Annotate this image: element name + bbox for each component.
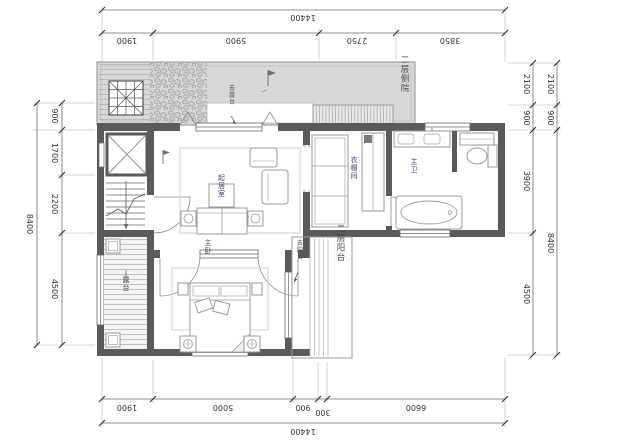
- nightstand-left: [178, 283, 188, 295]
- to-balcony-text: 去阳台: [296, 239, 303, 261]
- dim-top-seg-1: 5900: [226, 36, 246, 45]
- terrace-pebble-floor: [150, 63, 207, 123]
- elevator: [99, 134, 147, 175]
- dim-right: 2100 900 3900 4500 2100 900 8400: [522, 74, 555, 304]
- label-master-bath: 主卫: [410, 157, 418, 174]
- dim-bottom-seg-2: 900: [295, 403, 310, 412]
- floor-plan: 起居室 去露台 主卧: [0, 0, 640, 441]
- vanity: [394, 128, 450, 147]
- armchair: [262, 170, 288, 204]
- dim-right-outer-0: 2100: [546, 74, 555, 94]
- planter-right: [244, 336, 260, 352]
- dim-bottom-total: 14400: [290, 427, 315, 436]
- armchair-top: [250, 148, 277, 167]
- dim-right-outer-2: 8400: [546, 233, 555, 253]
- dim-bottom: 1900 5000 900 300 6600 14400: [117, 403, 426, 436]
- elevation-marker-living: [163, 150, 170, 164]
- dim-bottom-seg-4: 6600: [406, 403, 426, 412]
- dim-bottom-seg-1: 5000: [213, 403, 233, 412]
- dim-top-seg-2: 2750: [347, 36, 367, 45]
- dim-bottom-seg-3: 300: [315, 408, 330, 417]
- skylight-grille: [109, 81, 143, 115]
- bathtub: [396, 196, 462, 229]
- dim-right-seg-2: 3900: [522, 171, 531, 191]
- wardrobe-right: [362, 133, 384, 211]
- end-table-right: [248, 211, 263, 226]
- staircase: [106, 181, 145, 229]
- to-terrace-text: 去露台: [228, 84, 235, 106]
- balcony: 二层阳台 去阳台: [292, 224, 352, 358]
- dim-right-seg-3: 4500: [522, 284, 531, 304]
- wardrobe-left: [312, 135, 348, 227]
- planter-left: [180, 336, 196, 352]
- label-living-room: 起居室: [218, 174, 226, 198]
- closet: 衣帽间: [312, 133, 384, 227]
- dim-top: 14400 1900 5900 2750 3850: [117, 13, 460, 45]
- label-master-bedroom: 主卧: [204, 238, 212, 255]
- deck: 露台: [104, 237, 147, 349]
- dim-left-seg-3: 4500: [50, 279, 59, 299]
- deck-planter-bottom: [106, 333, 120, 347]
- dim-right-outer-1: 900: [546, 110, 555, 125]
- dim-left-seg-1: 1700: [50, 143, 59, 163]
- dim-top-seg-3: 3850: [440, 36, 460, 45]
- dim-top-total: 14400: [290, 13, 315, 22]
- sofa: [197, 208, 247, 234]
- dim-right-seg-0: 2100: [522, 74, 531, 94]
- nightstand-right: [252, 283, 262, 295]
- dim-left-seg-2: 2200: [50, 194, 59, 214]
- terrace-grate: [313, 105, 393, 125]
- label-closet: 衣帽间: [350, 155, 358, 180]
- deck-planter-top: [106, 239, 120, 253]
- label-balcony: 二层阳台: [335, 224, 345, 262]
- master-bath: 主卫: [394, 128, 497, 229]
- balcony-plank-floor: [306, 239, 330, 356]
- dim-left-total: 8400: [25, 214, 34, 234]
- dim-bottom-seg-0: 1900: [117, 403, 137, 412]
- deck-plank-floor: [104, 237, 147, 349]
- dim-left-seg-0: 900: [50, 108, 59, 123]
- label-deck: 露台: [122, 276, 130, 292]
- toilet: [467, 145, 497, 167]
- dim-right-seg-1: 900: [522, 110, 531, 125]
- label-side-yard: 二层侧院: [399, 55, 409, 93]
- end-table-left: [181, 211, 196, 226]
- roof-terrace: [97, 62, 415, 125]
- dim-top-seg-0: 1900: [117, 36, 137, 45]
- dim-left: 8400 900 1700 2200 4500: [25, 108, 59, 299]
- terrace-walkway: [207, 103, 313, 123]
- cabinet-top-right: [460, 133, 494, 145]
- bed: [190, 283, 250, 352]
